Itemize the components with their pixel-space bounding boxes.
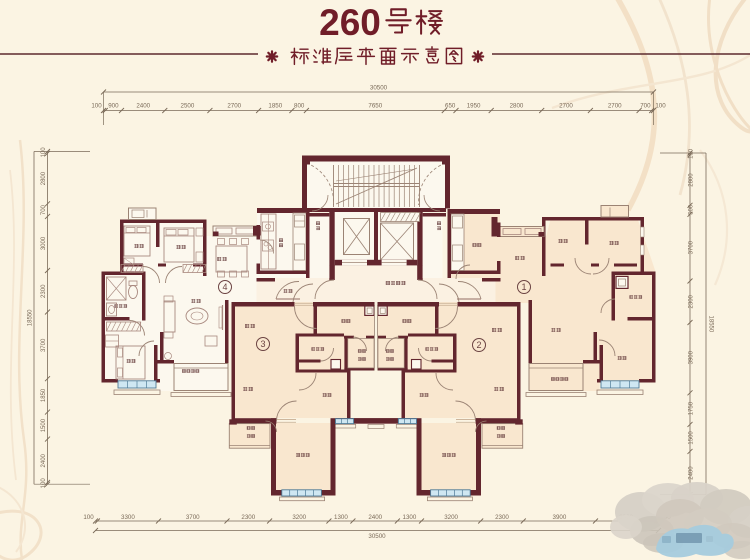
svg-text:700: 700	[640, 102, 651, 109]
svg-text:1750: 1750	[688, 401, 694, 415]
svg-text:4: 4	[222, 282, 227, 292]
svg-text:700: 700	[41, 204, 47, 215]
svg-text:30500: 30500	[368, 533, 386, 540]
svg-text:1: 1	[521, 282, 526, 292]
svg-text:18550: 18550	[28, 309, 34, 326]
svg-text:800: 800	[294, 102, 305, 109]
svg-text:2300: 2300	[241, 514, 255, 521]
svg-text:900: 900	[108, 102, 119, 109]
svg-text:1850: 1850	[41, 388, 47, 402]
svg-text:2700: 2700	[608, 102, 622, 109]
svg-text:3700: 3700	[689, 240, 695, 254]
svg-text:2800: 2800	[688, 173, 694, 187]
svg-text:2300: 2300	[41, 284, 47, 298]
svg-text:2300: 2300	[495, 514, 509, 521]
svg-text:1850: 1850	[268, 102, 282, 109]
svg-text:18550: 18550	[707, 316, 713, 333]
svg-text:1500: 1500	[688, 431, 694, 445]
svg-text:3200: 3200	[292, 514, 306, 521]
svg-text:1300: 1300	[334, 514, 348, 521]
svg-text:2700: 2700	[559, 102, 573, 109]
svg-text:3900: 3900	[689, 350, 695, 364]
svg-text:2400: 2400	[41, 453, 47, 467]
svg-text:3300: 3300	[121, 514, 135, 521]
svg-text:100: 100	[41, 478, 47, 489]
svg-text:650: 650	[445, 102, 456, 109]
svg-text:2700: 2700	[227, 102, 241, 109]
svg-text:2400: 2400	[136, 102, 150, 109]
svg-text:7650: 7650	[368, 102, 382, 109]
svg-text:3900: 3900	[553, 514, 567, 521]
svg-text:3200: 3200	[444, 514, 458, 521]
svg-text:100: 100	[655, 102, 666, 109]
svg-text:2300: 2300	[689, 294, 695, 308]
svg-text:100: 100	[688, 148, 694, 159]
svg-text:2400: 2400	[368, 514, 382, 521]
svg-text:3000: 3000	[41, 236, 47, 250]
svg-text:500: 500	[688, 204, 694, 215]
svg-text:2800: 2800	[510, 102, 524, 109]
svg-text:2: 2	[476, 340, 481, 350]
svg-text:100: 100	[41, 147, 47, 158]
svg-text:30500: 30500	[370, 85, 388, 92]
svg-text:100: 100	[83, 514, 94, 521]
svg-text:3700: 3700	[41, 338, 47, 352]
svg-text:100: 100	[91, 102, 102, 109]
svg-text:1300: 1300	[403, 514, 417, 521]
svg-text:1500: 1500	[41, 418, 47, 432]
svg-text:3: 3	[260, 339, 265, 349]
svg-text:260: 260	[319, 2, 381, 43]
svg-text:1950: 1950	[467, 102, 481, 109]
svg-text:2400: 2400	[689, 466, 695, 480]
svg-text:2800: 2800	[41, 171, 47, 185]
svg-text:3700: 3700	[186, 514, 200, 521]
svg-text:2500: 2500	[181, 102, 195, 109]
